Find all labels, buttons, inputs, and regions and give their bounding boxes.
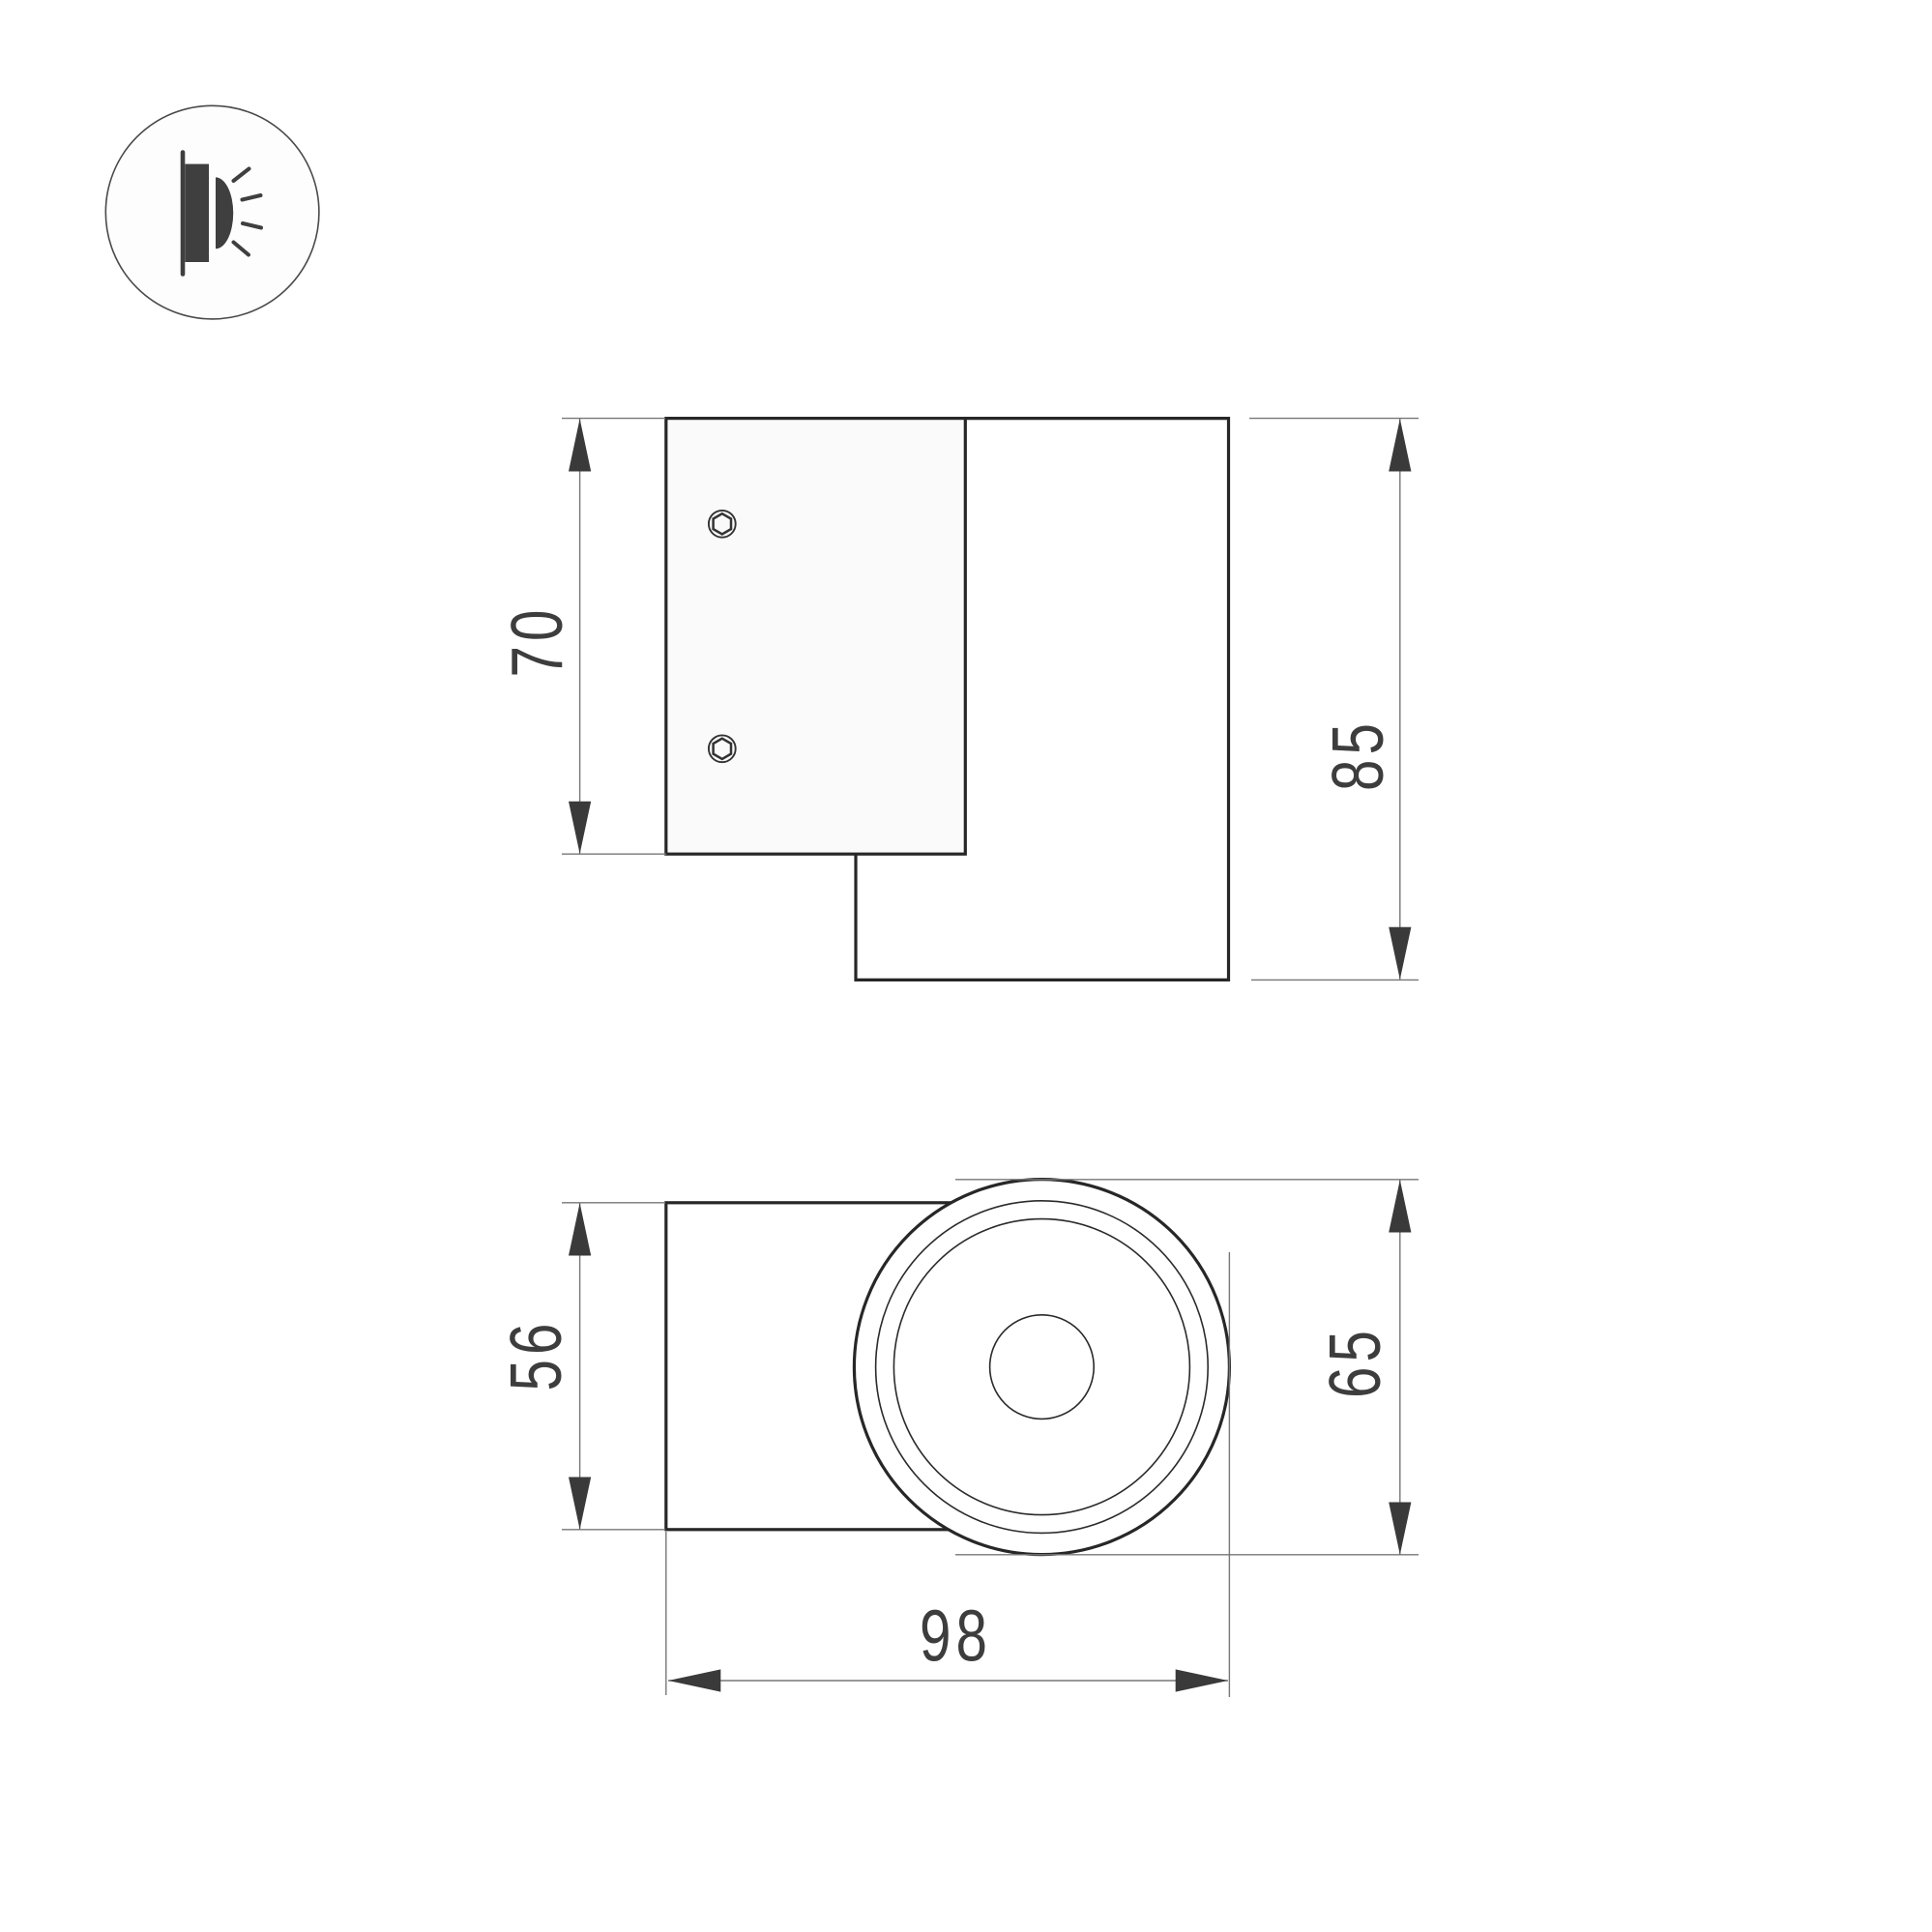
svg-text:56: 56 [496, 1319, 577, 1391]
svg-text:98: 98 [920, 1595, 992, 1677]
svg-text:65: 65 [1315, 1326, 1396, 1398]
svg-text:70: 70 [497, 605, 578, 678]
svg-text:85: 85 [1318, 718, 1399, 791]
